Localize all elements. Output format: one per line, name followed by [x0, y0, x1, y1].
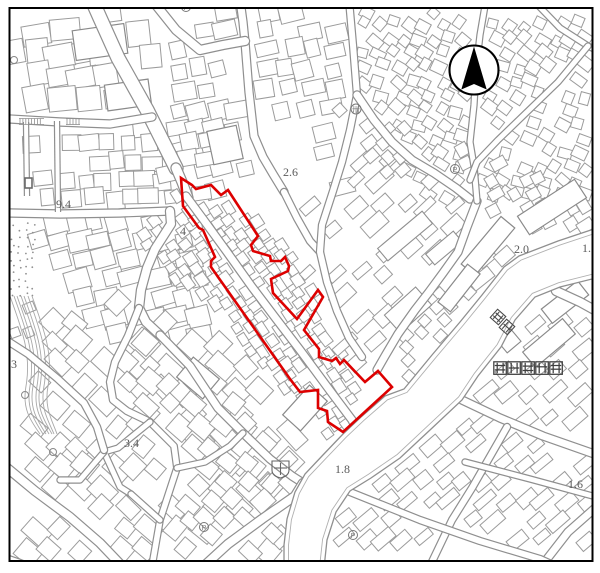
svg-text:3.4: 3.4: [124, 436, 139, 450]
svg-text:1.6: 1.6: [568, 477, 583, 491]
svg-text:4: 4: [180, 224, 186, 238]
svg-text:2.6: 2.6: [283, 165, 298, 179]
svg-text:卅: 卅: [352, 106, 360, 115]
svg-text:P: P: [351, 533, 356, 540]
svg-text:3: 3: [11, 357, 17, 371]
svg-text:P: P: [453, 167, 458, 174]
svg-text:2.0: 2.0: [514, 242, 529, 256]
svg-text:P: P: [202, 525, 207, 532]
svg-text:1.8: 1.8: [335, 462, 350, 476]
svg-text:9.4: 9.4: [56, 197, 71, 211]
